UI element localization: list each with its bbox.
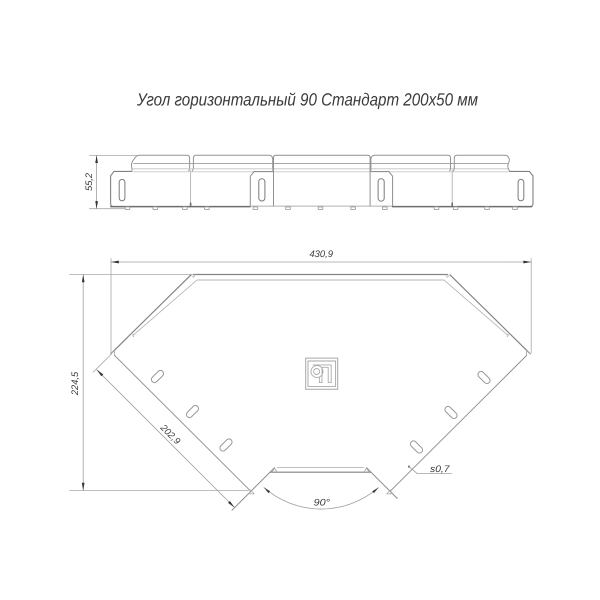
svg-text:s0,7: s0,7: [430, 464, 450, 475]
svg-text:90°: 90°: [314, 497, 331, 508]
svg-text:224,5: 224,5: [70, 371, 81, 396]
svg-text:Угол горизонтальный 90 Стандар: Угол горизонтальный 90 Стандарт 200х50 м…: [136, 89, 479, 109]
svg-text:430,9: 430,9: [309, 249, 333, 260]
svg-text:55,2: 55,2: [84, 172, 95, 190]
